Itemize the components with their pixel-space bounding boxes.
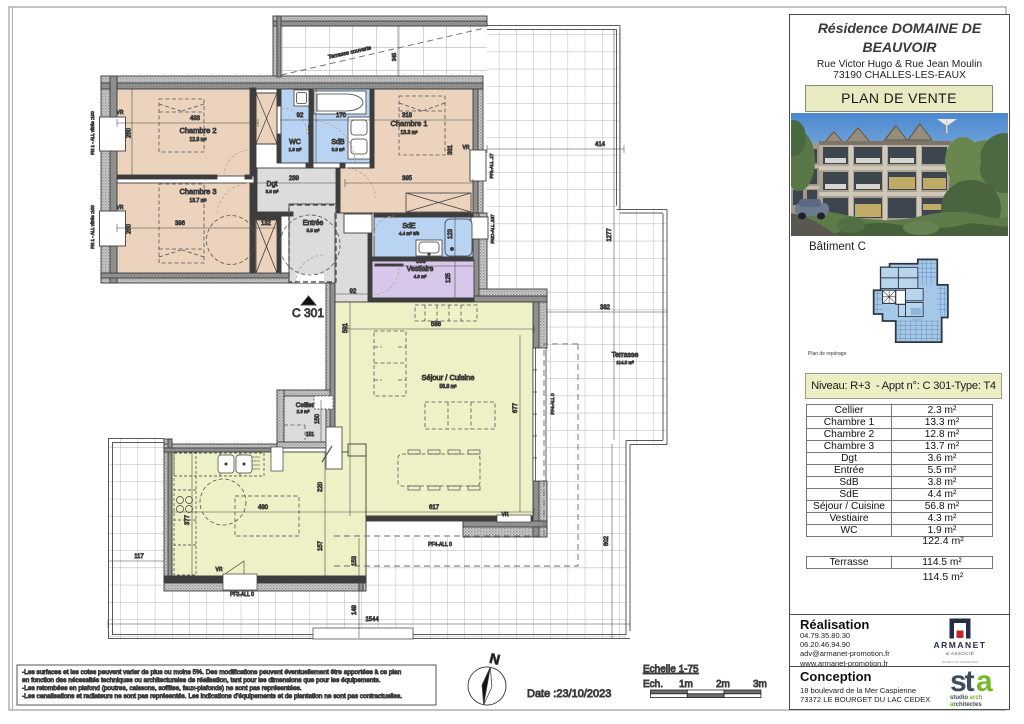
svg-text:2m: 2m xyxy=(716,679,730,690)
svg-text:289: 289 xyxy=(289,176,300,182)
svg-text:260: 260 xyxy=(127,127,133,138)
svg-text:Cellier: Cellier xyxy=(296,402,315,409)
svg-text:PNO-ALL .167: PNO-ALL .167 xyxy=(490,214,495,244)
svg-text:1.9 m²: 1.9 m² xyxy=(289,147,302,152)
svg-text:& ASSOCIÉ: & ASSOCIÉ xyxy=(946,650,975,656)
svg-text:153: 153 xyxy=(352,555,358,566)
svg-text:st: st xyxy=(950,665,975,698)
svg-text:en fonction des nécessités tec: en fonction des nécessités techniques ou… xyxy=(22,677,381,684)
svg-text:13.3 m²: 13.3 m² xyxy=(401,130,418,136)
svg-text:FN 1 - ALL vitrée :100: FN 1 - ALL vitrée :100 xyxy=(90,205,95,249)
svg-text:Date :23/10/2023: Date :23/10/2023 xyxy=(527,688,611,700)
svg-text:377: 377 xyxy=(185,514,191,525)
svg-text:FN 1 - ALL vitrée :100: FN 1 - ALL vitrée :100 xyxy=(90,111,95,155)
svg-text:414: 414 xyxy=(595,142,606,148)
svg-text:N: N xyxy=(488,650,502,668)
svg-text:VR: VR xyxy=(216,567,223,573)
svg-text:617: 617 xyxy=(429,505,440,511)
svg-text:Chambre 1: Chambre 1 xyxy=(390,119,427,128)
svg-text:PROMOTION IMMOBILIÈRE: PROMOTION IMMOBILIÈRE xyxy=(942,659,978,664)
svg-text:117: 117 xyxy=(134,554,144,560)
svg-text:132: 132 xyxy=(261,221,272,227)
svg-text:-Les retombées en plafond (pou: -Les retombées en plafond (poutres, cais… xyxy=(22,685,302,692)
svg-text:VR: VR xyxy=(502,512,509,518)
svg-text:4.3 m²: 4.3 m² xyxy=(414,274,427,279)
svg-text:3.8 m²: 3.8 m² xyxy=(332,147,345,152)
svg-text:WC: WC xyxy=(289,139,301,146)
svg-text:SdE: SdE xyxy=(402,223,416,230)
svg-text:architectes: architectes xyxy=(950,702,982,707)
svg-text:Dgt: Dgt xyxy=(267,181,278,188)
svg-text:Chambre 2: Chambre 2 xyxy=(179,126,216,135)
svg-text:PF1-ALL .17: PF1-ALL .17 xyxy=(489,153,494,179)
svg-text:588: 588 xyxy=(431,322,442,328)
svg-text:149: 149 xyxy=(352,604,358,615)
svg-text:260: 260 xyxy=(127,223,133,234)
svg-text:-Les surfaces et les cotes peu: -Les surfaces et les cotes peuvent varie… xyxy=(22,669,402,676)
svg-text:493: 493 xyxy=(190,116,201,122)
svg-text:Echelle 1-75: Echelle 1-75 xyxy=(643,664,699,675)
svg-text:591: 591 xyxy=(343,322,349,333)
svg-text:56.8 m²: 56.8 m² xyxy=(440,384,457,390)
svg-text:480: 480 xyxy=(258,505,269,511)
svg-text:396: 396 xyxy=(175,221,186,227)
svg-text:-Les canalisations et radiateu: -Les canalisations et radiateurs ne sont… xyxy=(22,693,402,700)
svg-text:Séjour / Cuisine: Séjour / Cuisine xyxy=(422,373,475,382)
svg-text:157: 157 xyxy=(318,540,324,551)
svg-text:5.5 m²: 5.5 m² xyxy=(307,228,320,233)
svg-text:VR: VR xyxy=(463,145,470,151)
svg-text:13.7 m²: 13.7 m² xyxy=(190,198,207,204)
svg-text:92: 92 xyxy=(350,289,357,295)
svg-text:150: 150 xyxy=(315,413,321,424)
svg-text:602: 602 xyxy=(604,535,610,546)
svg-text:PF4-ALL 0: PF4-ALL 0 xyxy=(550,393,555,415)
svg-text:3.6 m²: 3.6 m² xyxy=(266,189,279,194)
svg-text:2.3 m²: 2.3 m² xyxy=(297,409,310,414)
svg-text:C 301: C 301 xyxy=(292,306,324,320)
svg-text:92: 92 xyxy=(297,113,304,119)
svg-text:381: 381 xyxy=(448,144,454,155)
svg-text:VR: VR xyxy=(117,205,124,211)
svg-text:395: 395 xyxy=(402,176,413,182)
svg-text:170: 170 xyxy=(336,113,347,119)
svg-text:1544: 1544 xyxy=(365,617,379,623)
svg-text:PF4-ALL 0: PF4-ALL 0 xyxy=(428,542,452,548)
svg-text:Vestiaire: Vestiaire xyxy=(407,266,434,273)
svg-text:PF2-ALL 0: PF2-ALL 0 xyxy=(230,592,254,598)
svg-text:1m: 1m xyxy=(679,679,693,690)
svg-text:VR: VR xyxy=(117,110,124,116)
svg-text:Chambre 3: Chambre 3 xyxy=(179,187,216,196)
svg-text:382: 382 xyxy=(600,305,611,311)
svg-text:Entrée: Entrée xyxy=(303,220,324,227)
svg-text:ARMANET: ARMANET xyxy=(934,640,987,650)
svg-text:114.5 m²: 114.5 m² xyxy=(616,360,634,365)
svg-text:1277: 1277 xyxy=(607,228,613,242)
svg-text:Ech.: Ech. xyxy=(643,679,663,690)
svg-text:studio arch: studio arch xyxy=(950,695,983,701)
svg-text:677: 677 xyxy=(513,402,519,413)
svg-text:a: a xyxy=(976,665,993,698)
svg-text:12.8 m²: 12.8 m² xyxy=(190,137,207,143)
svg-text:123: 123 xyxy=(448,228,454,239)
svg-text:3m: 3m xyxy=(753,679,767,690)
svg-text:125: 125 xyxy=(446,272,452,283)
svg-text:220: 220 xyxy=(318,481,324,492)
svg-text:345: 345 xyxy=(392,53,398,62)
svg-text:Terrasse: Terrasse xyxy=(612,352,639,359)
svg-text:SdB: SdB xyxy=(331,139,345,146)
svg-text:4.4 m² 3/8: 4.4 m² 3/8 xyxy=(399,231,420,236)
svg-text:309: 309 xyxy=(416,259,427,265)
svg-text:120: 120 xyxy=(251,190,257,201)
svg-text:151: 151 xyxy=(306,432,315,438)
svg-text:225: 225 xyxy=(309,124,315,135)
